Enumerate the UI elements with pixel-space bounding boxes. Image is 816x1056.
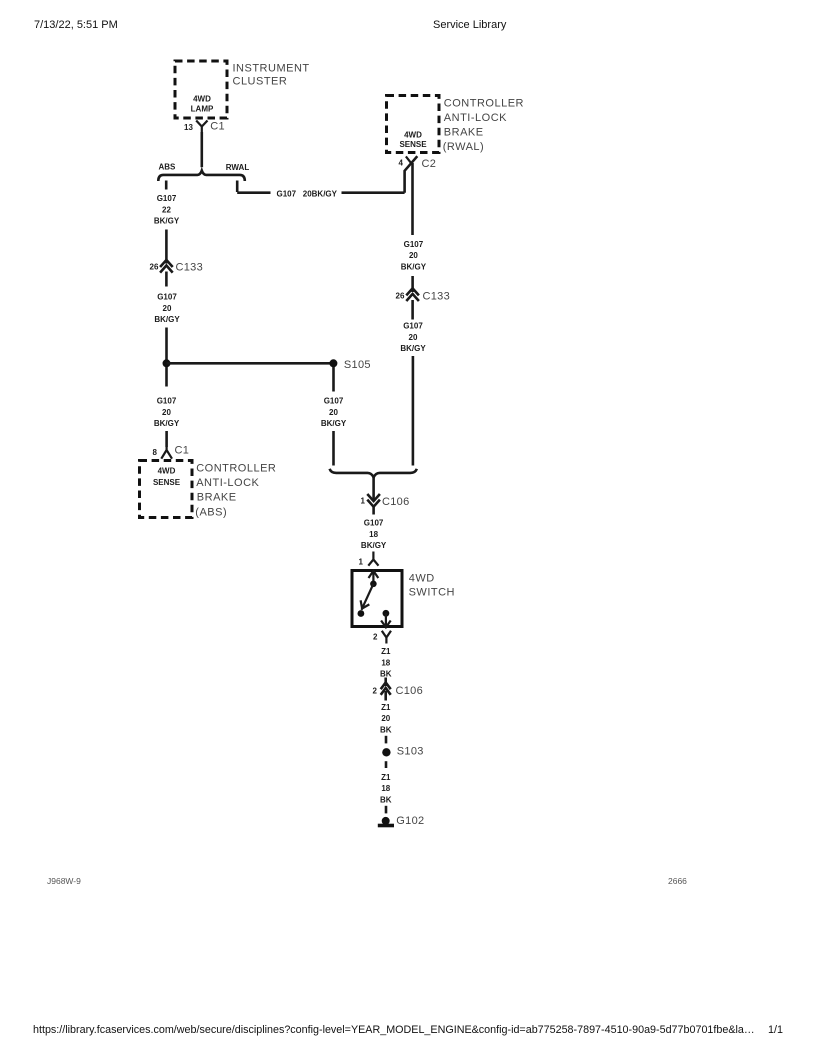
svg-text:Z1: Z1 [381, 703, 391, 712]
svg-text:BK/GY: BK/GY [154, 315, 180, 324]
svg-text:BK/GY: BK/GY [400, 344, 426, 353]
svg-text:2: 2 [373, 687, 378, 696]
svg-text:20: 20 [409, 251, 418, 260]
svg-text:G102: G102 [396, 815, 424, 827]
svg-text:BK/GY: BK/GY [401, 262, 427, 271]
svg-text:ANTI-LOCK: ANTI-LOCK [444, 112, 507, 124]
svg-text:G107: G107 [364, 519, 384, 528]
svg-text:BRAKE: BRAKE [444, 127, 484, 139]
svg-text:BK/GY: BK/GY [361, 541, 387, 550]
svg-text:4WD: 4WD [404, 131, 422, 140]
svg-text:4WD: 4WD [193, 95, 211, 104]
svg-text:BK: BK [380, 795, 392, 804]
svg-text:20: 20 [409, 333, 418, 342]
svg-text:LAMP: LAMP [191, 105, 214, 114]
svg-text:13: 13 [184, 123, 193, 132]
svg-text:G107: G107 [157, 194, 177, 203]
svg-text:18: 18 [381, 784, 390, 793]
svg-text:BRAKE: BRAKE [197, 492, 237, 504]
svg-text:26: 26 [396, 292, 405, 301]
svg-text:BK/GY: BK/GY [321, 419, 347, 428]
svg-text:2666: 2666 [668, 876, 687, 886]
svg-text:G107: G107 [324, 397, 344, 406]
svg-text:2: 2 [373, 633, 378, 642]
svg-text:4WD: 4WD [409, 573, 435, 585]
svg-text:ABS: ABS [159, 163, 177, 172]
svg-text:C106: C106 [382, 496, 410, 508]
svg-text:Z1: Z1 [381, 773, 391, 782]
svg-text:BK/GY: BK/GY [154, 419, 180, 428]
svg-text:Z1: Z1 [381, 647, 391, 656]
svg-text:C1: C1 [175, 445, 190, 457]
svg-text:BK: BK [380, 725, 392, 734]
svg-text:C133: C133 [176, 262, 204, 274]
svg-text:4: 4 [399, 159, 404, 168]
svg-text:8: 8 [153, 448, 158, 457]
svg-text:G107: G107 [403, 322, 423, 331]
svg-text:CONTROLLER: CONTROLLER [196, 463, 276, 475]
svg-text:S105: S105 [344, 359, 371, 371]
svg-text:C2: C2 [422, 158, 437, 170]
svg-text:G107: G107 [404, 240, 424, 249]
svg-text:SENSE: SENSE [399, 140, 427, 149]
svg-text:(RWAL): (RWAL) [443, 141, 485, 153]
svg-text:CONTROLLER: CONTROLLER [444, 98, 524, 110]
svg-text:G107: G107 [157, 397, 177, 406]
svg-text:20: 20 [329, 408, 338, 417]
svg-text:CLUSTER: CLUSTER [233, 76, 288, 88]
svg-text:G107 20BK/GY: G107 20BK/GY [277, 190, 338, 199]
svg-text:20: 20 [162, 408, 171, 417]
svg-text:S103: S103 [397, 746, 424, 758]
svg-text:SWITCH: SWITCH [409, 586, 455, 598]
svg-text:SENSE: SENSE [153, 478, 181, 487]
svg-text:4WD: 4WD [158, 467, 176, 476]
svg-text:1: 1 [359, 558, 364, 567]
svg-text:BK: BK [380, 670, 392, 679]
svg-text:ANTI-LOCK: ANTI-LOCK [196, 477, 259, 489]
svg-text:J968W-9: J968W-9 [47, 876, 81, 886]
svg-text:20: 20 [163, 304, 172, 313]
svg-text:C133: C133 [423, 291, 451, 303]
svg-text:26: 26 [150, 263, 159, 272]
svg-text:(ABS): (ABS) [195, 506, 227, 518]
svg-text:1: 1 [361, 497, 366, 506]
svg-text:BK/GY: BK/GY [154, 217, 180, 226]
svg-text:RWAL: RWAL [226, 163, 250, 172]
svg-text:20: 20 [381, 714, 390, 723]
svg-text:18: 18 [369, 530, 378, 539]
svg-text:18: 18 [381, 658, 390, 667]
svg-text:C106: C106 [396, 685, 424, 697]
svg-text:C1: C1 [210, 121, 225, 133]
svg-text:INSTRUMENT: INSTRUMENT [233, 63, 310, 75]
svg-text:22: 22 [162, 205, 171, 214]
svg-text:G107: G107 [157, 293, 177, 302]
